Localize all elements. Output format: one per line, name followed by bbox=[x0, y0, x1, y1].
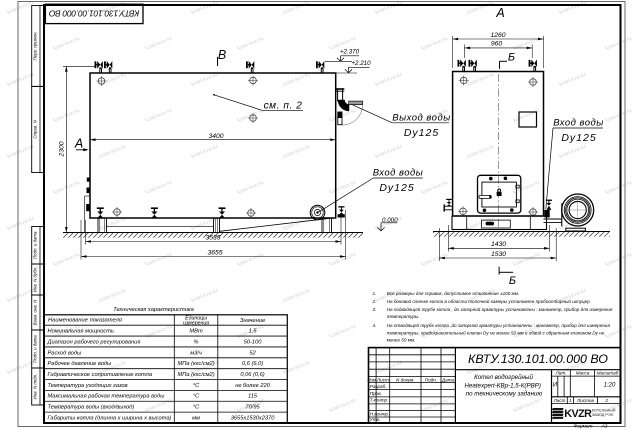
svg-text:КВТУ.130.101.00.000 ВО: КВТУ.130.101.00.000 ВО bbox=[468, 352, 608, 366]
svg-text:В: В bbox=[218, 48, 226, 62]
svg-text:КОТЕЛЬНЫЙ: КОТЕЛЬНЫЙ bbox=[592, 409, 616, 413]
svg-text:Температура воды (вход/выход): Температура воды (вход/выход) bbox=[48, 405, 135, 411]
svg-text:+2.210: +2.210 bbox=[351, 60, 371, 67]
svg-text:kotel-kvzr.kz: kotel-kvzr.kz bbox=[283, 0, 312, 16]
svg-text:2: 2 bbox=[604, 398, 608, 403]
svg-text:Диапазон рабочего регулировани: Диапазон рабочего регулирования bbox=[47, 339, 141, 345]
svg-text:Масштаб: Масштаб bbox=[597, 371, 619, 376]
svg-text:kotel-kvzr.kz: kotel-kvzr.kz bbox=[237, 251, 266, 267]
svg-text:kotel-kvzr.kz: kotel-kvzr.kz bbox=[53, 251, 82, 267]
svg-text:0,6 (6,0): 0,6 (6,0) bbox=[242, 361, 263, 367]
svg-text:kotel-kvzr.kz: kotel-kvzr.kz bbox=[145, 251, 174, 267]
svg-text:2.: 2. bbox=[372, 299, 377, 304]
svg-text:0,06 (0,6): 0,06 (0,6) bbox=[240, 372, 264, 378]
svg-text:измерения: измерения bbox=[183, 320, 209, 326]
svg-text:Подп. и дата: Подп. и дата bbox=[33, 335, 38, 363]
svg-text:Dy125: Dy125 bbox=[404, 127, 439, 139]
svg-text:kotel-kvzr.kz: kotel-kvzr.kz bbox=[605, 35, 634, 51]
svg-text:kotel-kvzr.kz: kotel-kvzr.kz bbox=[145, 35, 174, 51]
svg-text:Расход воды: Расход воды bbox=[48, 350, 82, 356]
svg-text:Номинальная мощность: Номинальная мощность bbox=[48, 329, 114, 335]
svg-text:kotel-kvzr.kz: kotel-kvzr.kz bbox=[53, 179, 82, 195]
svg-text:Heatexpert-КВр-1,5-К(РВР): Heatexpert-КВр-1,5-К(РВР) bbox=[464, 382, 540, 389]
svg-text:kotel-kvzr.kz: kotel-kvzr.kz bbox=[145, 179, 174, 195]
svg-text:Максимальная рабочая температу: Максимальная рабочая температура воды bbox=[48, 394, 166, 400]
svg-text:Формат: Формат bbox=[573, 424, 592, 430]
svg-text:МВт: МВт bbox=[189, 329, 203, 335]
svg-text:На подводящей трубе котла ,: На подводящей трубе котла , до запорной … bbox=[387, 306, 613, 312]
svg-text:Dy125: Dy125 bbox=[379, 182, 414, 194]
svg-text:kotel-kvzr.kz: kotel-kvzr.kz bbox=[237, 179, 266, 195]
svg-text:1260: 1260 bbox=[490, 32, 505, 39]
svg-text:по техническому заданию: по техническому заданию bbox=[466, 390, 543, 397]
svg-text:Перв. примен.: Перв. примен. bbox=[33, 31, 38, 60]
svg-text:Н.контр.: Н.контр. bbox=[370, 411, 389, 416]
svg-text:kotel-kvzr.kz: kotel-kvzr.kz bbox=[7, 0, 36, 16]
svg-text:kotel-kvzr.kz: kotel-kvzr.kz bbox=[99, 143, 128, 159]
svg-text:Техническая характеристика: Техническая характеристика bbox=[113, 307, 194, 313]
svg-text:kotel-kvzr.kz: kotel-kvzr.kz bbox=[513, 35, 542, 51]
svg-text:kotel-kvzr.kz: kotel-kvzr.kz bbox=[421, 251, 450, 267]
svg-text:kotel-kvzr.kz: kotel-kvzr.kz bbox=[329, 323, 358, 339]
svg-text:2300: 2300 bbox=[59, 141, 66, 157]
svg-text:Подп. и дата: Подп. и дата bbox=[33, 231, 38, 259]
svg-text:KVZR: KVZR bbox=[564, 408, 592, 420]
svg-text:kotel-kvzr.kz: kotel-kvzr.kz bbox=[421, 179, 450, 195]
svg-text:Листов: Листов bbox=[576, 398, 594, 403]
svg-text:3655х1530х2370: 3655х1530х2370 bbox=[231, 415, 275, 421]
svg-text:Лит.: Лит. bbox=[555, 371, 567, 376]
svg-text:kotel-kvzr.kz: kotel-kvzr.kz bbox=[329, 251, 358, 267]
svg-text:Подп.: Подп. bbox=[425, 377, 437, 382]
svg-text:kotel-kvzr.kz: kotel-kvzr.kz bbox=[375, 71, 404, 87]
svg-text:ЗАВОД РЭП: ЗАВОД РЭП bbox=[592, 413, 614, 417]
svg-text:kotel-kvzr.kz: kotel-kvzr.kz bbox=[329, 397, 358, 413]
svg-text:Инв. N дубл.: Инв. N дубл. bbox=[33, 267, 38, 292]
svg-text:3400: 3400 bbox=[208, 133, 223, 140]
svg-text:kotel-kvzr.kz: kotel-kvzr.kz bbox=[559, 215, 588, 231]
svg-text:Б: Б bbox=[509, 275, 516, 287]
svg-text:Б: Б bbox=[508, 52, 515, 64]
svg-text:Лист: Лист bbox=[553, 398, 566, 403]
svg-text:kotel-kvzr.kz: kotel-kvzr.kz bbox=[237, 35, 266, 51]
svg-text:kotel-kvzr.kz: kotel-kvzr.kz bbox=[375, 143, 404, 159]
svg-text:kotel-kvzr.kz: kotel-kvzr.kz bbox=[191, 71, 220, 87]
svg-text:3.: 3. bbox=[373, 307, 377, 312]
svg-text:КВТУ.130.101.00.000 ВО: КВТУ.130.101.00.000 ВО bbox=[48, 9, 139, 19]
svg-text:температуры.: температуры. bbox=[387, 314, 420, 319]
svg-text:А3: А3 bbox=[601, 424, 608, 430]
svg-text:kotel-kvzr.kz: kotel-kvzr.kz bbox=[283, 143, 312, 159]
svg-text:Изм.: Изм. bbox=[367, 377, 377, 382]
svg-text:не более 220: не более 220 bbox=[235, 383, 271, 389]
svg-text:°С: °С bbox=[193, 383, 200, 389]
svg-text:мм: мм bbox=[192, 415, 200, 421]
svg-text:kotel-kvzr.kz: kotel-kvzr.kz bbox=[421, 35, 450, 51]
svg-text:kotel-kvzr.kz: kotel-kvzr.kz bbox=[513, 107, 542, 123]
svg-text:Вход воды: Вход воды bbox=[553, 118, 604, 129]
svg-text:kotel-kvzr.kz: kotel-kvzr.kz bbox=[7, 287, 36, 303]
svg-text:kotel-kvzr.kz: kotel-kvzr.kz bbox=[191, 287, 220, 303]
svg-text:kotel-kvzr.kz: kotel-kvzr.kz bbox=[145, 107, 174, 123]
svg-text:На боковой стенке котла в обла: На боковой стенке котла в области топочн… bbox=[387, 298, 591, 304]
svg-text:kotel-kvzr.kz: kotel-kvzr.kz bbox=[191, 0, 220, 16]
svg-text:1: 1 bbox=[569, 398, 572, 403]
svg-text:Справ. N: Справ. N bbox=[33, 119, 38, 138]
svg-text:50-100: 50-100 bbox=[244, 339, 263, 345]
svg-text:Котел водогрейный: Котел водогрейный bbox=[474, 374, 533, 381]
svg-text:kotel-kvzr.kz: kotel-kvzr.kz bbox=[329, 179, 358, 195]
svg-text:Наименование показателя: Наименование показателя bbox=[48, 318, 122, 324]
svg-text:Dy125: Dy125 bbox=[561, 132, 596, 144]
svg-text:kotel-kvzr.kz: kotel-kvzr.kz bbox=[7, 215, 36, 231]
svg-text:+2.370: +2.370 bbox=[340, 49, 360, 56]
svg-text:менее 50 мм.: менее 50 мм. bbox=[387, 338, 416, 343]
svg-text:Утв.: Утв. bbox=[370, 417, 380, 422]
svg-text:kotel-kvzr.kz: kotel-kvzr.kz bbox=[513, 397, 542, 413]
svg-text:Выход воды: Выход воды bbox=[392, 113, 450, 124]
svg-text:Взам. инв. N: Взам. инв. N bbox=[33, 299, 38, 325]
svg-text:температуры, предохранительный: температуры, предохранительный клапан Dу… bbox=[387, 329, 605, 335]
svg-text:Масса: Масса bbox=[576, 371, 590, 376]
svg-text:0.000: 0.000 bbox=[382, 217, 398, 224]
svg-text:1.: 1. bbox=[373, 291, 377, 296]
svg-text:kotel-kvzr.kz: kotel-kvzr.kz bbox=[513, 251, 542, 267]
svg-text:Разраб.: Разраб. bbox=[370, 384, 387, 389]
svg-text:kotel-kvzr.kz: kotel-kvzr.kz bbox=[467, 71, 496, 87]
svg-text:Инв. N подл.: Инв. N подл. bbox=[33, 374, 38, 400]
svg-text:kotel-kvzr.kz: kotel-kvzr.kz bbox=[7, 143, 36, 159]
svg-text:На отводящей трубе котла ,до з: На отводящей трубе котла ,до запорной ар… bbox=[387, 322, 611, 328]
svg-text:kotel-kvzr.kz: kotel-kvzr.kz bbox=[559, 0, 588, 16]
svg-text:N докум.: N докум. bbox=[396, 377, 415, 382]
svg-text:1430: 1430 bbox=[491, 241, 506, 248]
svg-text:А: А bbox=[74, 137, 83, 151]
svg-text:МПа (кгс/см2): МПа (кгс/см2) bbox=[177, 361, 214, 367]
svg-text:kotel-kvzr.kz: kotel-kvzr.kz bbox=[99, 287, 128, 303]
svg-text:kotel-kvzr.kz: kotel-kvzr.kz bbox=[145, 323, 174, 339]
svg-text:Вход воды: Вход воды bbox=[373, 168, 424, 179]
svg-text:kotel-kvzr.kz: kotel-kvzr.kz bbox=[99, 71, 128, 87]
svg-text:kotel-kvzr.kz: kotel-kvzr.kz bbox=[283, 71, 312, 87]
svg-text:kotel-kvzr.kz: kotel-kvzr.kz bbox=[7, 71, 36, 87]
svg-text:kotel-kvzr.kz: kotel-kvzr.kz bbox=[559, 143, 588, 159]
svg-text:kotel-kvzr.kz: kotel-kvzr.kz bbox=[605, 107, 634, 123]
svg-text:kotel-kvzr.kz: kotel-kvzr.kz bbox=[329, 107, 358, 123]
svg-text:3535: 3535 bbox=[205, 234, 220, 241]
svg-text:kotel-kvzr.kz: kotel-kvzr.kz bbox=[53, 35, 82, 51]
svg-text:Гидравлическое сопротивление к: Гидравлическое сопротивление котла bbox=[48, 372, 153, 378]
svg-text:960: 960 bbox=[491, 41, 503, 48]
svg-text:°С: °С bbox=[193, 394, 200, 400]
svg-text:Температура уходящих газов: Температура уходящих газов bbox=[48, 383, 128, 389]
svg-text:1530: 1530 bbox=[491, 251, 506, 258]
svg-text:Все размеры для справок, допус: Все размеры для справок, допустимое откл… bbox=[387, 291, 519, 296]
svg-text:1:20: 1:20 bbox=[604, 383, 616, 389]
svg-text:И: И bbox=[553, 383, 558, 389]
svg-text:4.: 4. bbox=[373, 323, 377, 328]
svg-text:Рабочее давление воды: Рабочее давление воды bbox=[48, 361, 113, 367]
svg-text:1,5: 1,5 bbox=[249, 329, 258, 335]
svg-text:kotel-kvzr.kz: kotel-kvzr.kz bbox=[375, 0, 404, 16]
svg-text:kotel-kvzr.kz: kotel-kvzr.kz bbox=[467, 143, 496, 159]
svg-text:kotel-kvzr.kz: kotel-kvzr.kz bbox=[191, 143, 220, 159]
svg-text:kotel-kvzr.kz: kotel-kvzr.kz bbox=[467, 0, 496, 16]
svg-text:kotel-kvzr.kz: kotel-kvzr.kz bbox=[53, 107, 82, 123]
svg-text:Габариты котла (длинна х ширин: Габариты котла (длинна х ширина х высота… bbox=[48, 415, 172, 421]
svg-text:%: % bbox=[194, 339, 199, 345]
svg-text:МПа (кгс/см2): МПа (кгс/см2) bbox=[177, 372, 214, 378]
svg-text:м3/ч: м3/ч bbox=[190, 350, 202, 356]
svg-text:Пров.: Пров. bbox=[370, 391, 382, 396]
svg-text:kotel-kvzr.kz: kotel-kvzr.kz bbox=[283, 287, 312, 303]
svg-text:Лист: Лист bbox=[376, 377, 389, 382]
svg-text:А: А bbox=[495, 6, 504, 20]
svg-text:kotel-kvzr.kz: kotel-kvzr.kz bbox=[421, 397, 450, 413]
svg-text:kotel-kvzr.kz: kotel-kvzr.kz bbox=[7, 359, 36, 375]
svg-text:kotel-kvzr.kz: kotel-kvzr.kz bbox=[605, 179, 634, 195]
svg-text:70/95: 70/95 bbox=[245, 405, 260, 411]
svg-text:115: 115 bbox=[248, 394, 258, 400]
svg-text:Т.контр.: Т.контр. bbox=[370, 398, 389, 403]
svg-text:Значение: Значение bbox=[240, 318, 266, 324]
svg-text:52: 52 bbox=[249, 350, 256, 356]
svg-text:°С: °С bbox=[193, 405, 200, 411]
svg-text:kotel-kvzr.kz: kotel-kvzr.kz bbox=[559, 71, 588, 87]
svg-text:Дата: Дата bbox=[441, 377, 455, 382]
svg-text:kotel-kvzr.kz: kotel-kvzr.kz bbox=[145, 397, 174, 413]
svg-text:см. п. 2: см. п. 2 bbox=[264, 100, 303, 111]
svg-text:3655: 3655 bbox=[207, 249, 222, 256]
svg-text:kotel-kvzr.kz: kotel-kvzr.kz bbox=[605, 251, 634, 267]
